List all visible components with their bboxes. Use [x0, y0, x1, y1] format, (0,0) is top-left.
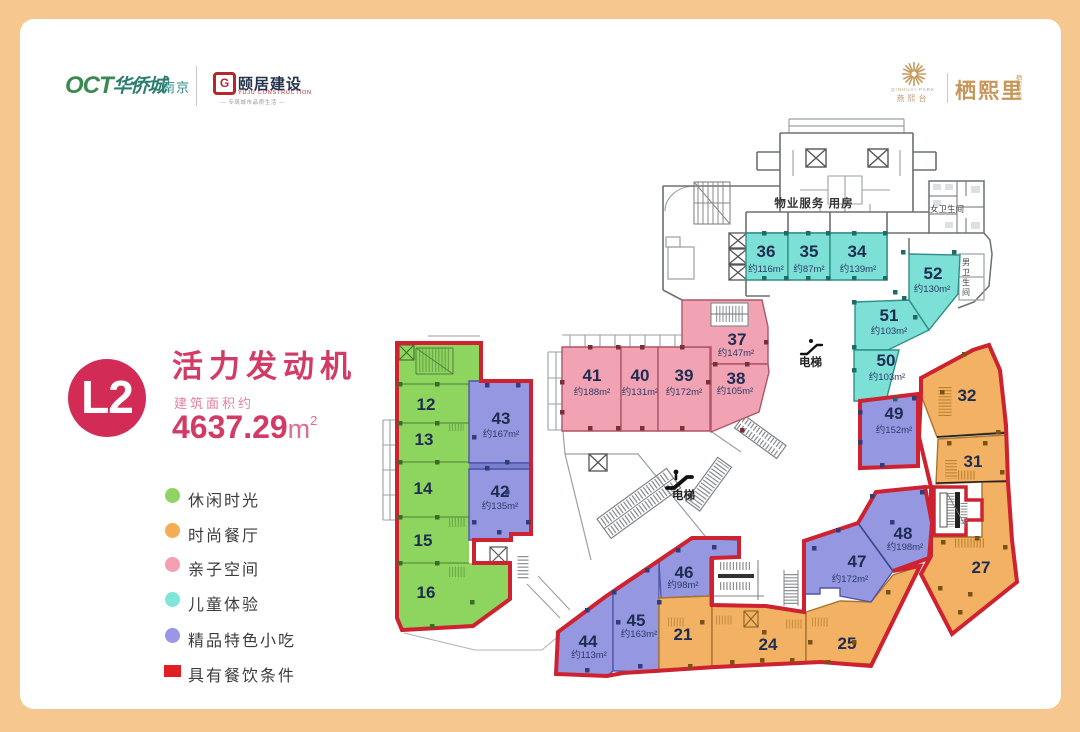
svg-text:约188m²: 约188m² — [574, 386, 610, 398]
svg-text:13: 13 — [415, 430, 434, 449]
svg-text:约103m²: 约103m² — [869, 371, 905, 383]
svg-text:12: 12 — [417, 395, 436, 414]
svg-text:物业服务 用房: 物业服务 用房 — [774, 196, 853, 210]
svg-text:约116m²: 约116m² — [748, 263, 784, 275]
svg-text:44: 44 — [579, 632, 598, 651]
svg-text:生: 生 — [962, 277, 970, 287]
svg-text:男: 男 — [962, 258, 970, 267]
svg-text:约105m²: 约105m² — [717, 385, 753, 397]
svg-text:约87m²: 约87m² — [793, 263, 824, 275]
svg-text:约172m²: 约172m² — [666, 386, 702, 398]
svg-text:36: 36 — [757, 242, 776, 261]
svg-text:约139m²: 约139m² — [840, 263, 876, 275]
svg-text:41: 41 — [583, 366, 602, 385]
svg-text:27: 27 — [972, 558, 991, 577]
svg-text:43: 43 — [492, 409, 511, 428]
svg-text:间: 间 — [962, 288, 970, 297]
svg-text:约172m²: 约172m² — [832, 573, 868, 585]
svg-text:50: 50 — [877, 351, 896, 370]
svg-text:52: 52 — [924, 264, 943, 283]
svg-text:约152m²: 约152m² — [876, 424, 912, 436]
svg-text:21: 21 — [674, 625, 693, 644]
svg-text:约147m²: 约147m² — [718, 347, 754, 359]
svg-text:约131m²: 约131m² — [622, 386, 658, 398]
svg-text:电梯: 电梯 — [672, 488, 695, 502]
svg-text:约113m²: 约113m² — [571, 649, 607, 661]
svg-text:电梯: 电梯 — [799, 355, 822, 369]
svg-text:约98m²: 约98m² — [667, 579, 698, 591]
svg-text:45: 45 — [627, 611, 646, 630]
svg-text:39: 39 — [675, 366, 694, 385]
svg-text:女卫生间: 女卫生间 — [930, 204, 964, 214]
svg-text:31: 31 — [964, 452, 983, 471]
svg-text:14: 14 — [414, 479, 433, 498]
svg-text:32: 32 — [958, 386, 977, 405]
svg-text:48: 48 — [894, 524, 913, 543]
svg-text:约135m²: 约135m² — [482, 500, 518, 512]
svg-text:约163m²: 约163m² — [621, 628, 657, 640]
svg-text:40: 40 — [631, 366, 650, 385]
svg-text:约130m²: 约130m² — [914, 283, 950, 295]
svg-text:卫: 卫 — [962, 268, 970, 277]
svg-text:15: 15 — [414, 531, 433, 550]
svg-text:约103m²: 约103m² — [871, 325, 907, 337]
svg-text:约167m²: 约167m² — [483, 428, 519, 440]
svg-text:47: 47 — [848, 552, 867, 571]
svg-text:34: 34 — [848, 242, 867, 261]
svg-text:约198m²: 约198m² — [887, 541, 923, 553]
svg-text:51: 51 — [880, 306, 899, 325]
svg-text:16: 16 — [417, 583, 436, 602]
svg-text:37: 37 — [728, 330, 747, 349]
svg-text:24: 24 — [759, 635, 778, 654]
svg-text:49: 49 — [885, 404, 904, 423]
svg-text:35: 35 — [800, 242, 819, 261]
